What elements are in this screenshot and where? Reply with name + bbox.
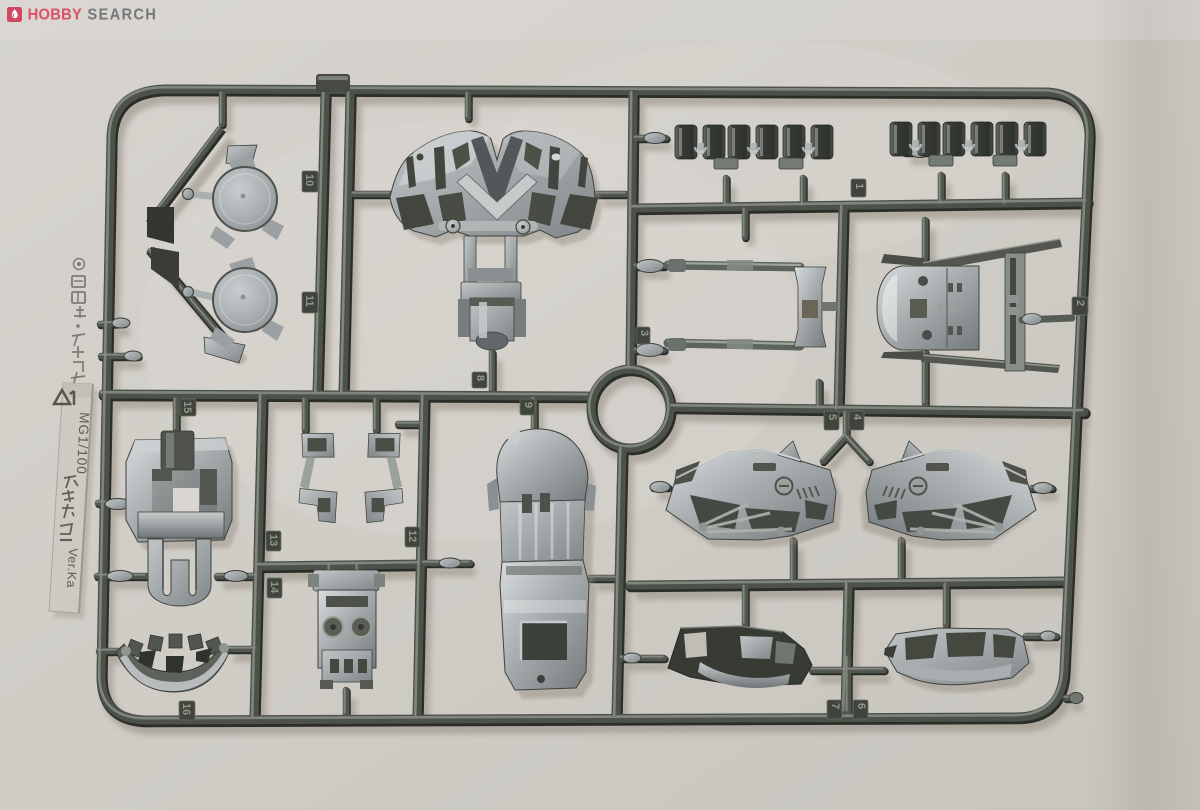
svg-text:15: 15 xyxy=(181,401,193,413)
svg-text:3: 3 xyxy=(638,330,650,336)
svg-text:SEARCH: SEARCH xyxy=(87,6,157,24)
svg-text:4: 4 xyxy=(851,414,863,421)
svg-text:11: 11 xyxy=(303,295,315,307)
svg-text:10: 10 xyxy=(303,174,315,186)
svg-text:12: 12 xyxy=(406,530,418,542)
svg-text:2: 2 xyxy=(1074,300,1086,306)
svg-text:8: 8 xyxy=(474,375,486,381)
svg-text:7: 7 xyxy=(829,703,841,709)
svg-text:1: 1 xyxy=(853,183,865,189)
svg-text:6: 6 xyxy=(855,703,867,709)
svg-text:9: 9 xyxy=(522,402,534,408)
svg-text:13: 13 xyxy=(267,534,279,546)
svg-text:14: 14 xyxy=(268,581,280,594)
svg-text:Ver.Ka: Ver.Ka xyxy=(64,548,80,589)
svg-text:16: 16 xyxy=(180,703,192,715)
svg-text:HOBBY: HOBBY xyxy=(28,6,83,24)
svg-text:5: 5 xyxy=(826,414,838,420)
